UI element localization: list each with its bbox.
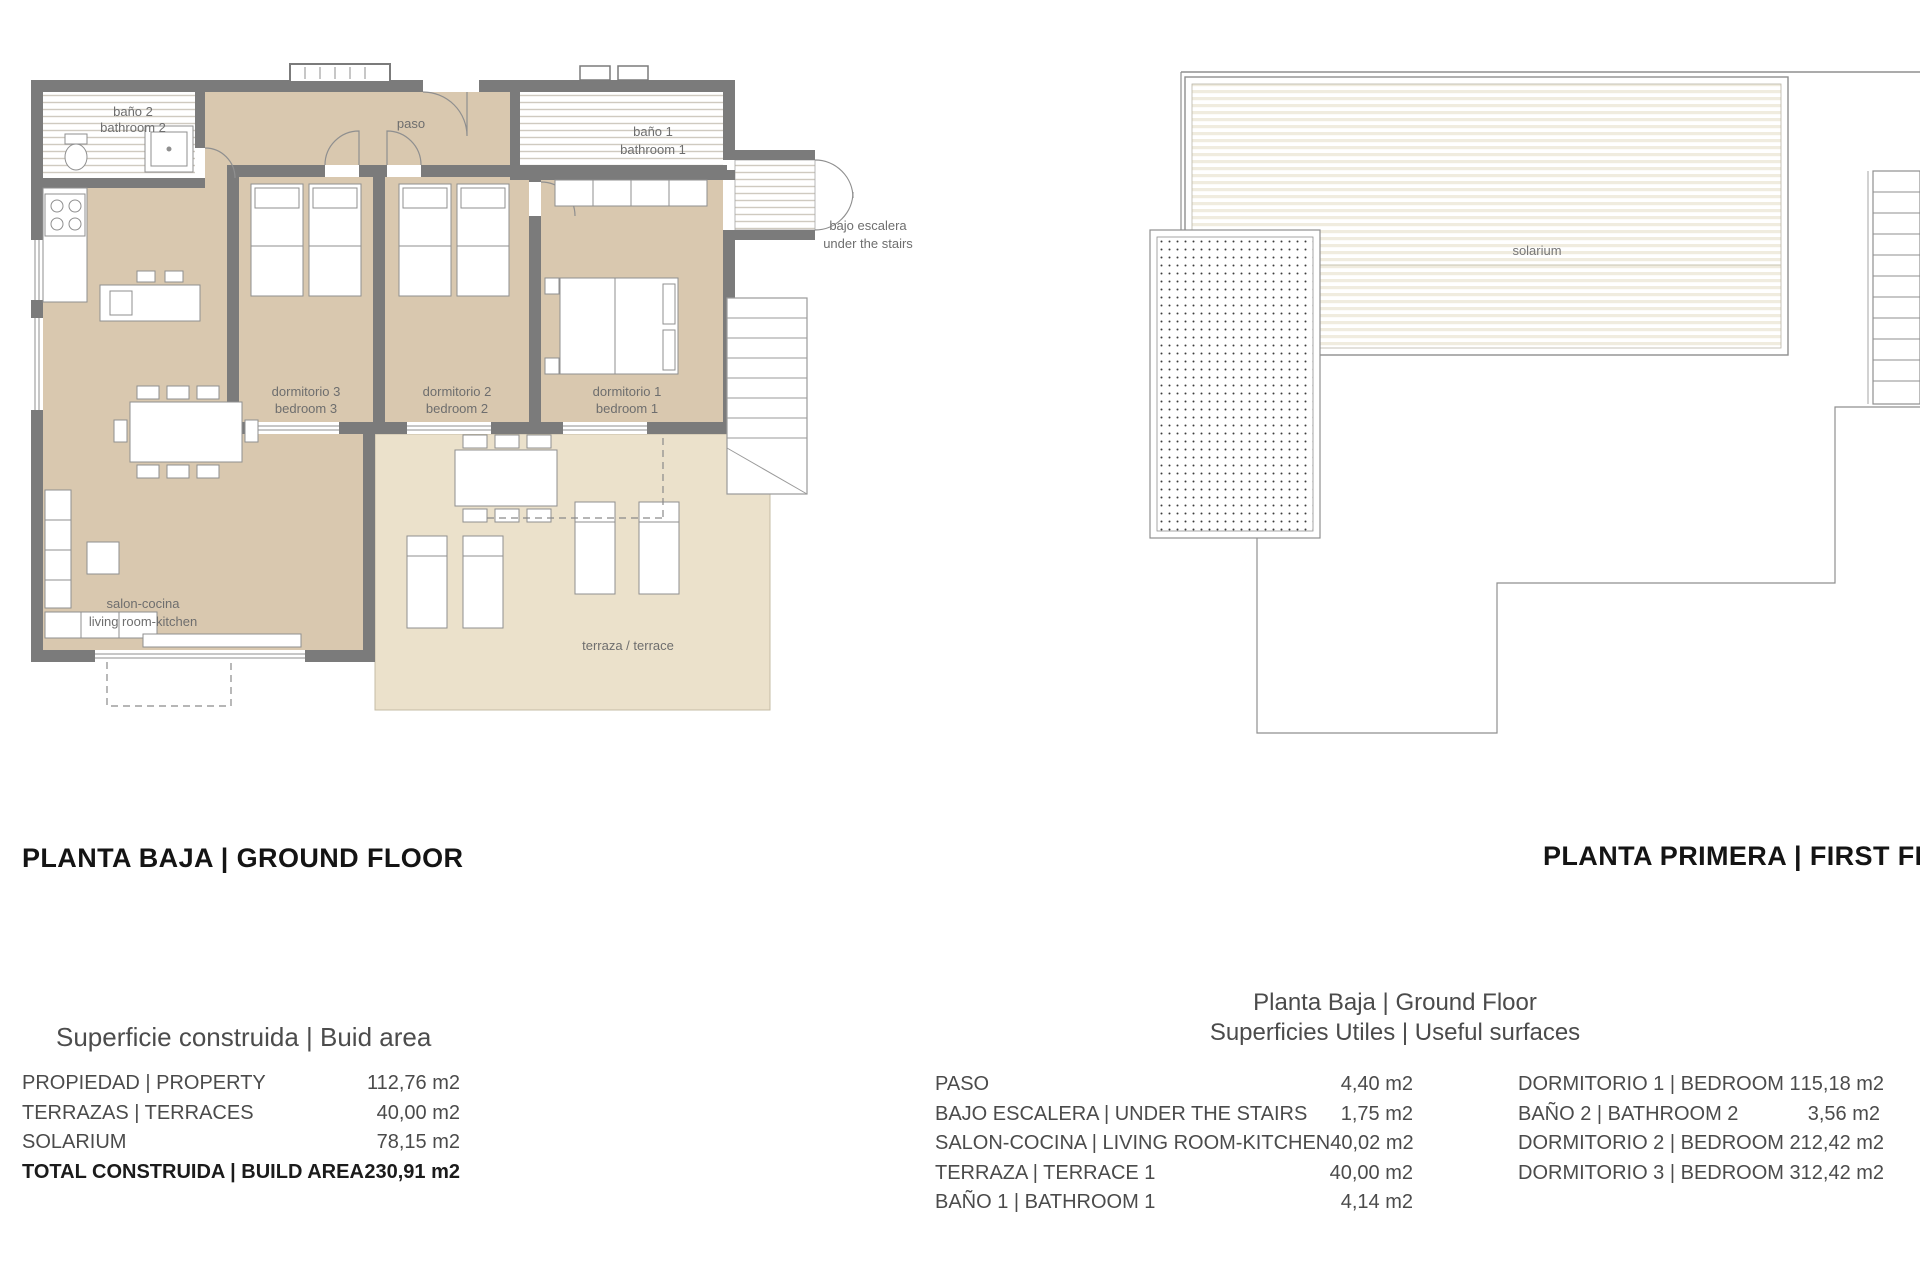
svg-text:living room-kitchen: living room-kitchen [89, 614, 197, 629]
table-row: SOLARIUM 78,15 m2 [22, 1128, 460, 1158]
table-row: PROPIEDAD | PROPERTY 112,76 m2 [22, 1069, 460, 1099]
row-value: 40,02 m2 [1330, 1129, 1413, 1159]
row-value: 78,15 m2 [377, 1128, 460, 1158]
row-label: SALON-COCINA | LIVING ROOM-KITCHEN [935, 1129, 1330, 1159]
dotted-terrace [1150, 230, 1320, 538]
row-value: 3,56 m2 [1808, 1100, 1880, 1130]
row-label: DORMITORIO 2 | BEDROOM 2 [1518, 1129, 1801, 1159]
row-value: 4,40 m2 [1341, 1070, 1413, 1100]
table-row: DORMITORIO 3 | BEDROOM 3 12,42 m2 [1518, 1159, 1880, 1189]
useful-surfaces-left-column: PASO 4,40 m2 BAJO ESCALERA | UNDER THE S… [935, 1070, 1413, 1218]
row-label: BAÑO 2 | BATHROOM 2 [1518, 1100, 1738, 1130]
row-label: DORMITORIO 3 | BEDROOM 3 [1518, 1159, 1801, 1189]
table-row: TERRAZA | TERRACE 1 40,00 m2 [935, 1159, 1413, 1189]
label-bano2: baño 2 [113, 104, 153, 119]
useful-surfaces-title-line1: Planta Baja | Ground Floor [1140, 988, 1650, 1018]
svg-text:bedroom 2: bedroom 2 [426, 401, 488, 416]
label-solarium: solarium [1512, 243, 1561, 258]
ground-floor-title: PLANTA BAJA | GROUND FLOOR [22, 843, 463, 874]
svg-text:bathroom 1: bathroom 1 [620, 142, 686, 157]
row-label: DORMITORIO 1 | BEDROOM 1 [1518, 1070, 1801, 1100]
row-value: 12,42 m2 [1801, 1129, 1884, 1159]
label-dorm2: dormitorio 2 [423, 384, 492, 399]
label-bano1: baño 1 [633, 124, 673, 139]
useful-surfaces-title-line2: Superficies Utiles | Useful surfaces [1140, 1018, 1650, 1048]
first-floor-title: PLANTA PRIMERA | FIRST FLOOR [1543, 841, 1920, 872]
table-row: DORMITORIO 1 | BEDROOM 1 15,18 m2 [1518, 1070, 1880, 1100]
label-salon: salon-cocina [107, 596, 181, 611]
table-row: TERRAZAS | TERRACES 40,00 m2 [22, 1099, 460, 1129]
row-label: PROPIEDAD | PROPERTY [22, 1069, 266, 1099]
useful-surfaces-right-column: DORMITORIO 1 | BEDROOM 1 15,18 m2 BAÑO 2… [1518, 1070, 1880, 1188]
plan-sheet: baño 2 bathroom 2 paso baño 1 bathroom 1… [0, 0, 1920, 1280]
row-label: PASO [935, 1070, 989, 1100]
label-dorm1: dormitorio 1 [593, 384, 662, 399]
row-label: TERRAZA | TERRACE 1 [935, 1159, 1155, 1189]
label-bajo-escalera: bajo escalera [829, 218, 907, 233]
table-row-total: TOTAL CONSTRUIDA | BUILD AREA 230,91 m2 [22, 1158, 460, 1188]
table-row: BAÑO 2 | BATHROOM 2 3,56 m2 [1518, 1100, 1880, 1130]
svg-text:bathroom 2: bathroom 2 [100, 120, 166, 135]
row-value: 4,14 m2 [1341, 1188, 1413, 1218]
label-terraza: terraza / terrace [582, 638, 674, 653]
row-label: TERRAZAS | TERRACES [22, 1099, 254, 1129]
table-row: BAJO ESCALERA | UNDER THE STAIRS 1,75 m2 [935, 1100, 1413, 1130]
built-area-table-title: Superficie construida | Buid area [56, 1022, 460, 1053]
table-row: DORMITORIO 2 | BEDROOM 2 12,42 m2 [1518, 1129, 1880, 1159]
row-label: BAJO ESCALERA | UNDER THE STAIRS [935, 1100, 1307, 1130]
svg-text:bedroom 3: bedroom 3 [275, 401, 337, 416]
table-row: SALON-COCINA | LIVING ROOM-KITCHEN 40,02… [935, 1129, 1413, 1159]
first-floor-stairs [1868, 171, 1920, 404]
row-label: BAÑO 1 | BATHROOM 1 [935, 1188, 1155, 1218]
row-value: 40,00 m2 [1330, 1159, 1413, 1189]
table-row: BAÑO 1 | BATHROOM 1 4,14 m2 [935, 1188, 1413, 1218]
svg-text:under the stairs: under the stairs [823, 236, 913, 251]
table-row: PASO 4,40 m2 [935, 1070, 1413, 1100]
row-value: 1,75 m2 [1341, 1100, 1413, 1130]
row-value: 230,91 m2 [364, 1158, 460, 1188]
row-label: SOLARIUM [22, 1128, 126, 1158]
row-value: 12,42 m2 [1801, 1159, 1884, 1189]
useful-surfaces-header: Planta Baja | Ground Floor Superficies U… [1140, 988, 1650, 1048]
row-label: TOTAL CONSTRUIDA | BUILD AREA [22, 1158, 364, 1188]
row-value: 40,00 m2 [377, 1099, 460, 1129]
exterior-stairs [727, 298, 807, 494]
first-floor-plan: solarium [1135, 55, 1920, 755]
row-value: 112,76 m2 [367, 1069, 460, 1099]
svg-text:bedroom 1: bedroom 1 [596, 401, 658, 416]
label-dorm3: dormitorio 3 [272, 384, 341, 399]
row-value: 15,18 m2 [1801, 1070, 1884, 1100]
ground-floor-plan: baño 2 bathroom 2 paso baño 1 bathroom 1… [15, 50, 925, 770]
label-paso: paso [397, 116, 425, 131]
built-area-table: Superficie construida | Buid area PROPIE… [22, 1022, 460, 1187]
